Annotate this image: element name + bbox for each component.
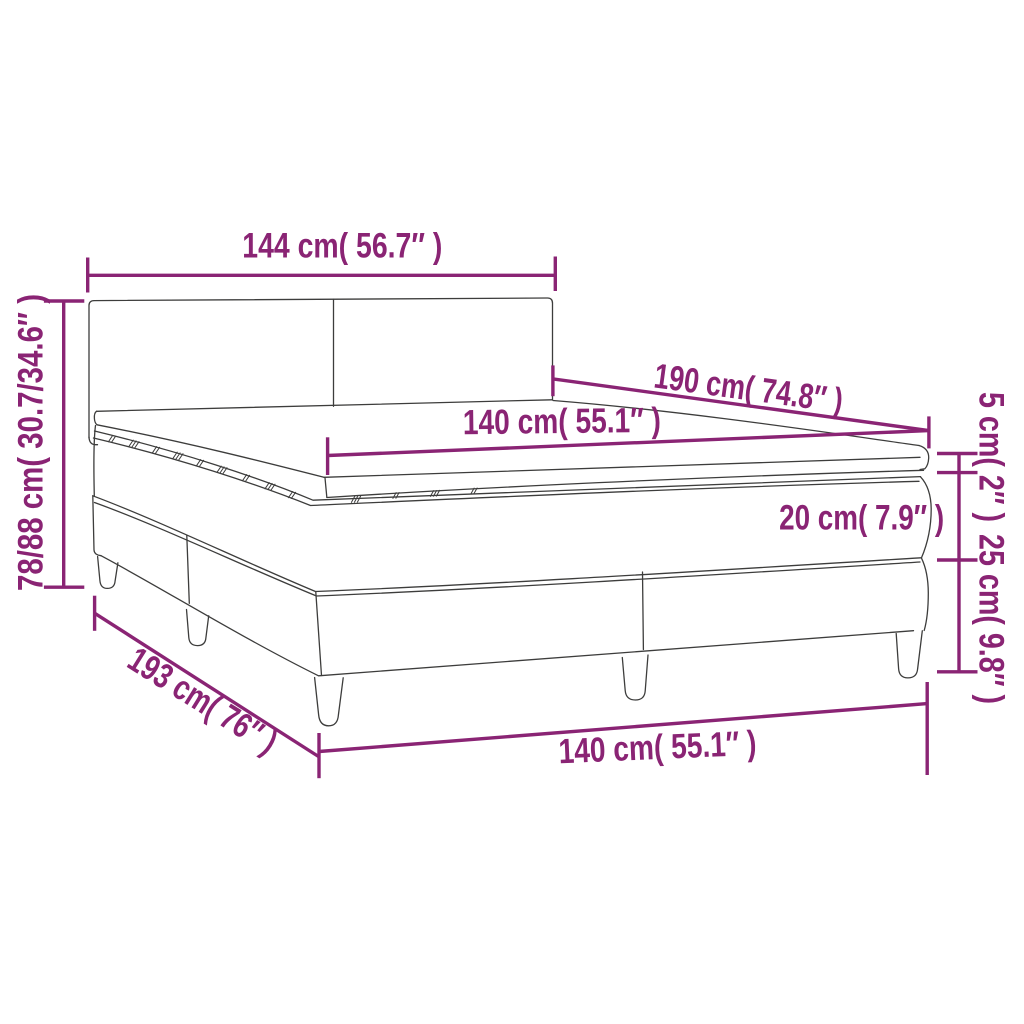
svg-text:25 cm( 9.8″ ): 25 cm( 9.8″ )	[972, 534, 1011, 704]
svg-text:140 cm( 55.1″ ): 140 cm( 55.1″ )	[463, 401, 661, 442]
svg-text:20 cm( 7.9″ ): 20 cm( 7.9″ )	[779, 498, 944, 537]
svg-text:5 cm( 2″ ): 5 cm( 2″ )	[972, 392, 1011, 522]
svg-text:78/88 cm( 30.7/34.6″ ): 78/88 cm( 30.7/34.6″ )	[12, 294, 51, 591]
svg-text:144 cm( 56.7″ ): 144 cm( 56.7″ )	[242, 227, 442, 266]
